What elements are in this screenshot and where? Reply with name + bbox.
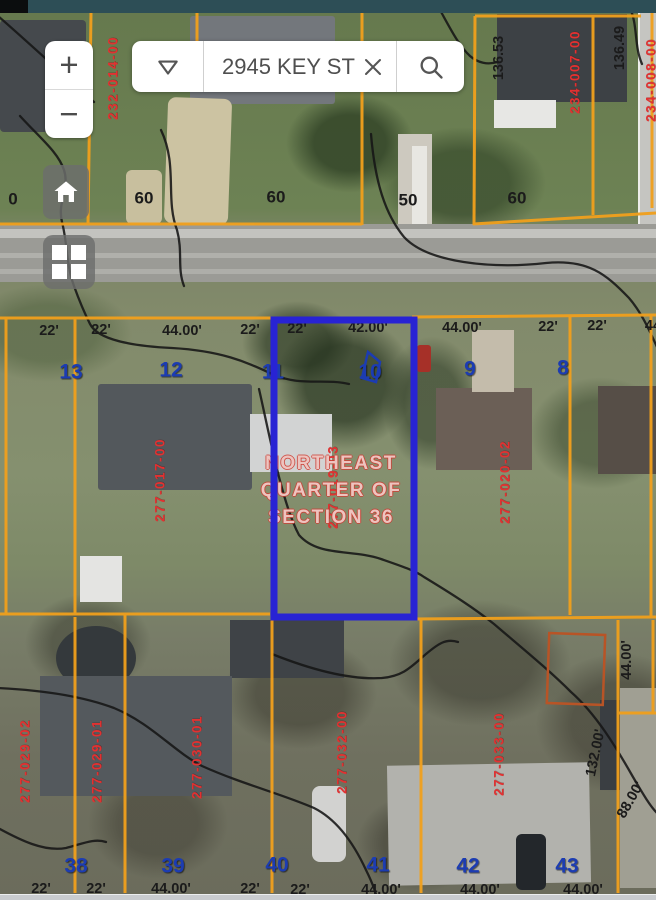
- zoom-out-button[interactable]: −: [45, 90, 93, 138]
- clear-search-button[interactable]: [358, 52, 388, 82]
- selected-parcel-outline[interactable]: [274, 320, 414, 617]
- close-icon: [361, 55, 385, 79]
- survey-marker: [362, 352, 380, 382]
- zoom-in-button[interactable]: +: [45, 41, 93, 90]
- gis-parcel-viewer: 232-014-00234-007-00234-008-00277-017-00…: [0, 0, 656, 900]
- layers-grid-icon: [52, 245, 86, 279]
- search-bar: [132, 41, 464, 92]
- home-icon: [51, 177, 81, 207]
- bottom-bar: [0, 894, 656, 900]
- zoom-control: + −: [45, 41, 93, 138]
- search-button[interactable]: [396, 41, 464, 92]
- selection-layer: [0, 0, 656, 900]
- status-bar: [0, 0, 656, 13]
- search-field: [204, 41, 396, 92]
- search-type-dropdown[interactable]: [132, 41, 204, 92]
- status-bar-corner: [0, 0, 28, 13]
- basemap-layers-button[interactable]: [43, 235, 95, 289]
- chevron-down-icon: [155, 54, 181, 80]
- home-button[interactable]: [43, 165, 89, 219]
- search-icon: [417, 53, 445, 81]
- search-input[interactable]: [222, 54, 358, 80]
